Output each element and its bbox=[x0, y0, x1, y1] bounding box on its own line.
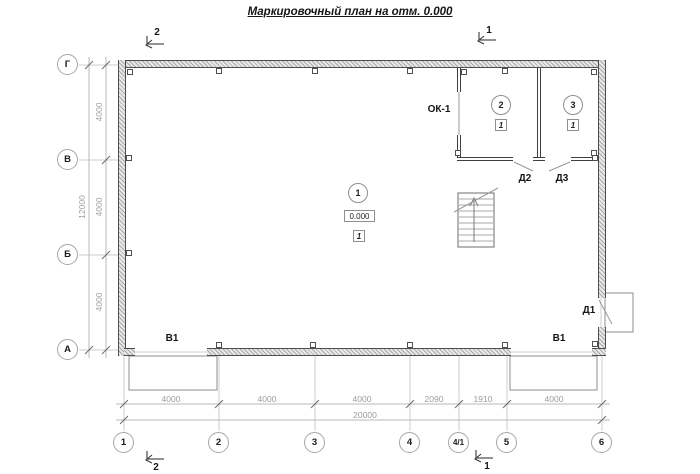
pilaster-mark bbox=[216, 68, 222, 74]
stairs-symbol bbox=[454, 188, 498, 247]
dim-left-segment-2: 4000 bbox=[94, 187, 104, 227]
dimension-ticks bbox=[85, 61, 606, 424]
dim-bottom-segment-4: 2090 bbox=[414, 394, 454, 404]
exterior-wall-bottom-right bbox=[592, 348, 606, 356]
exterior-wall-right-upper bbox=[598, 60, 606, 298]
corner-mark bbox=[127, 69, 133, 75]
window-label-ok1: ОК-1 bbox=[424, 104, 454, 115]
row-axis-bubble-v: В bbox=[57, 149, 78, 170]
corner-mark bbox=[591, 69, 597, 75]
pilaster-mark bbox=[310, 342, 316, 348]
section-number-top-left: 2 bbox=[150, 27, 164, 38]
gate-label-v1-right: В1 bbox=[547, 333, 571, 344]
pilaster-mark bbox=[126, 250, 132, 256]
pilaster-mark bbox=[126, 155, 132, 161]
room-2-floor-type: 1 bbox=[495, 119, 507, 131]
door-label-d3: Д3 bbox=[551, 173, 573, 184]
pilaster-mark bbox=[407, 68, 413, 74]
partition-room2-room3 bbox=[537, 68, 541, 161]
room-3-number: 3 bbox=[563, 95, 583, 115]
section-number-bottom-left: 2 bbox=[149, 462, 163, 473]
dim-left-segment-3: 4000 bbox=[94, 282, 104, 322]
row-axis-bubble-a: А bbox=[57, 339, 78, 360]
corner-mark bbox=[461, 69, 467, 75]
corner-mark bbox=[591, 150, 597, 156]
rooms-bottom-wall-left bbox=[457, 157, 513, 161]
dim-left-total: 12000 bbox=[77, 187, 87, 227]
col-axis-bubble-4-1: 4/1 bbox=[448, 432, 469, 453]
dimension-lines bbox=[89, 57, 610, 420]
col-axis-bubble-6: 6 bbox=[591, 432, 612, 453]
exterior-wall-bottom-middle bbox=[207, 348, 511, 356]
pilaster-mark bbox=[216, 342, 222, 348]
door-label-d2: Д2 bbox=[514, 173, 536, 184]
section-number-top-right: 1 bbox=[482, 25, 496, 36]
rooms-bottom-wall-stub bbox=[533, 157, 545, 161]
pilaster-mark bbox=[312, 68, 318, 74]
dim-bottom-total: 20000 bbox=[345, 410, 385, 420]
exterior-wall-left bbox=[118, 60, 126, 356]
col-axis-bubble-5: 5 bbox=[496, 432, 517, 453]
room-3-floor-type: 1 bbox=[567, 119, 579, 131]
corner-mark bbox=[455, 150, 461, 156]
exterior-wall-bottom-return bbox=[124, 348, 135, 356]
dim-bottom-segment-1: 4000 bbox=[151, 394, 191, 404]
drawing-title: Маркировочный план на отм. 0.000 bbox=[0, 6, 700, 18]
col-axis-bubble-4: 4 bbox=[399, 432, 420, 453]
room-1-number: 1 bbox=[348, 183, 368, 203]
col-axis-bubble-3: 3 bbox=[304, 432, 325, 453]
dim-bottom-segment-5: 1910 bbox=[463, 394, 503, 404]
pilaster-mark bbox=[502, 342, 508, 348]
pilaster-mark bbox=[592, 341, 598, 347]
pilaster-mark bbox=[502, 68, 508, 74]
dim-bottom-segment-2: 4000 bbox=[247, 394, 287, 404]
door-label-d1: Д1 bbox=[578, 305, 600, 316]
dim-left-segment-1: 4000 bbox=[94, 92, 104, 132]
gate-thresholds bbox=[135, 298, 601, 352]
row-axis-bubble-g: Г bbox=[57, 54, 78, 75]
dim-bottom-segment-3: 4000 bbox=[342, 394, 382, 404]
section-number-bottom-right: 1 bbox=[480, 461, 494, 472]
exterior-wall-top bbox=[118, 60, 606, 68]
col-axis-bubble-1: 1 bbox=[113, 432, 134, 453]
dim-bottom-segment-6: 4000 bbox=[534, 394, 574, 404]
gate-label-v1-left: В1 bbox=[160, 333, 184, 344]
stairs-up-arrow bbox=[470, 198, 478, 242]
floor-plan-drawing: Маркировочный план на отм. 0.000 bbox=[0, 0, 700, 474]
row-axis-bubble-b: Б bbox=[57, 244, 78, 265]
pilaster-mark bbox=[407, 342, 413, 348]
col-axis-bubble-2: 2 bbox=[208, 432, 229, 453]
room-1-floor-type: 1 bbox=[353, 230, 365, 242]
room-2-number: 2 bbox=[491, 95, 511, 115]
room-1-elevation: 0.000 bbox=[344, 210, 375, 222]
stairs-break-line bbox=[454, 188, 498, 212]
